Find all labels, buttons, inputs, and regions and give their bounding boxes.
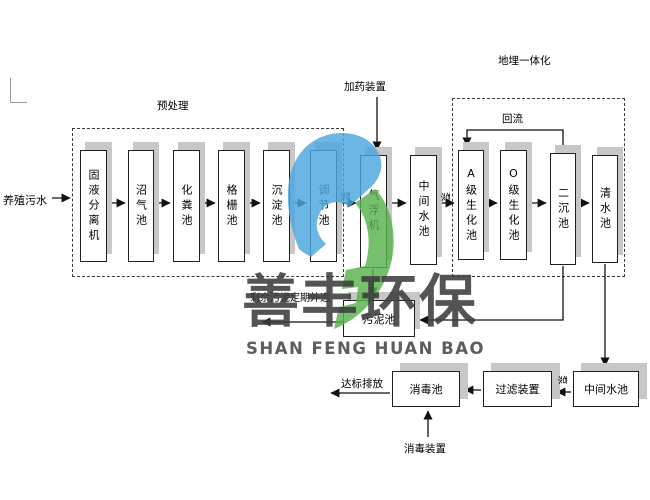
pump-label-3: 泵	[556, 375, 570, 385]
tank-label: 调节池	[318, 184, 329, 229]
reflux-label: 回流	[502, 111, 523, 126]
dosing-device-label: 加药装置	[344, 79, 386, 94]
source-label: 养殖污水	[3, 192, 47, 208]
tank-grid: 格栅池	[218, 150, 245, 262]
tank-label: 沉淀池	[271, 184, 282, 229]
tank-air-flotation: 气浮机	[360, 155, 387, 268]
tank-label: 消毒池	[410, 381, 443, 397]
tank-bottom-intermediate-pool: 中间水池	[573, 371, 639, 407]
tank-label: 过滤装置	[496, 381, 540, 397]
tank-clear-water: 清水池	[592, 155, 618, 263]
pretreatment-section-label: 预处理	[157, 98, 189, 113]
tank-label: A级生化池	[466, 167, 477, 244]
tank-label: 化粪池	[181, 184, 192, 229]
tank-label: O级生化池	[508, 167, 519, 244]
tank-intermediate-pool: 中间水池	[410, 155, 437, 265]
tank-filter-device: 过滤装置	[483, 371, 552, 407]
tank-label: 固液分离机	[88, 169, 99, 244]
pump-label-2: 泵	[439, 192, 453, 202]
tank-solid-liquid-separator: 固液分离机	[80, 150, 107, 262]
tank-label: 沼气池	[136, 184, 147, 229]
disinfection-device-label: 消毒装置	[404, 441, 446, 456]
tank-label: 气浮机	[368, 189, 379, 234]
tank-o-biochemical: O级生化池	[500, 150, 527, 260]
tank-a-biochemical: A级生化池	[458, 150, 484, 260]
tank-label: 二沉池	[558, 187, 569, 232]
process-flow-diagram-page: { "diagram": { "source_label": "养殖污水", "…	[0, 0, 650, 500]
tank-label: 中间水池	[418, 180, 429, 240]
tank-secondary-sedimentation: 二沉池	[550, 153, 576, 265]
tank-biogas: 沼气池	[128, 150, 154, 262]
watermark-name-en: SHAN FENG HUAN BAO	[246, 341, 485, 358]
pump-label-1: 泵	[339, 191, 353, 201]
watermark-name-cn: 善丰环保	[242, 274, 478, 331]
tank-label: 清水池	[600, 187, 611, 232]
buried-integration-section-label: 地埋一体化	[498, 53, 551, 68]
tank-disinfection: 消毒池	[392, 371, 460, 407]
tank-regulating: 调节池	[310, 150, 337, 262]
tank-label: 格栅池	[226, 184, 237, 229]
tank-label: 中间水池	[584, 381, 628, 397]
discharge-label: 达标排放	[341, 376, 383, 391]
tank-sedimentation: 沉淀池	[263, 150, 290, 262]
tank-septic: 化粪池	[173, 150, 200, 262]
